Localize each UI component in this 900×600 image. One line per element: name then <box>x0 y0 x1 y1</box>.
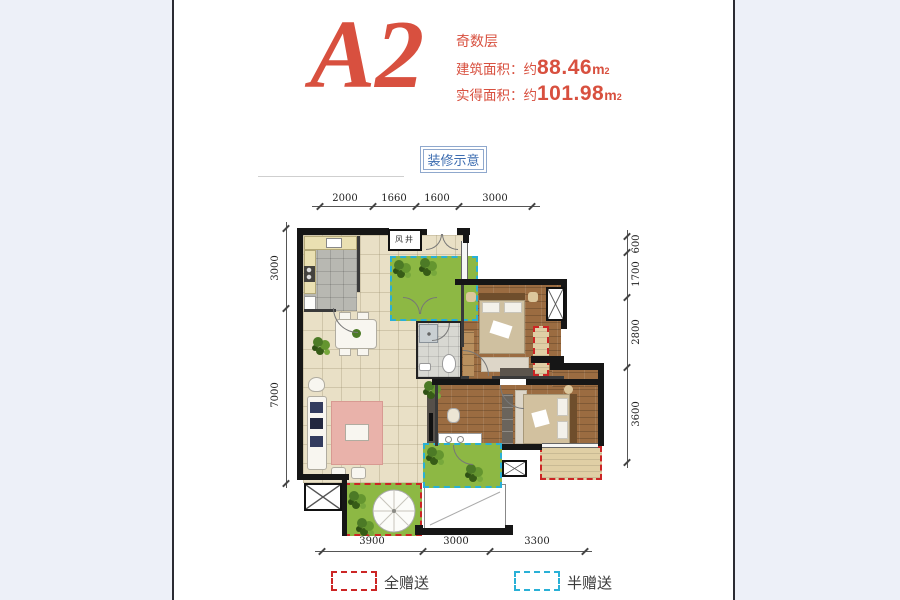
decor-tab-label: 装修示意 <box>423 149 484 170</box>
building-area-unit: m <box>592 61 604 77</box>
panel-left-edge <box>172 0 174 600</box>
vanity-basin <box>457 436 464 443</box>
parasol-icon <box>371 488 417 534</box>
wall <box>531 356 564 363</box>
interior-wall <box>304 309 336 312</box>
coffee-table <box>345 424 369 441</box>
tv <box>429 413 433 441</box>
dim-line-bottom <box>315 551 592 552</box>
building-area-label: 建筑面积：约 <box>456 58 537 78</box>
dim-label: 3300 <box>512 536 562 547</box>
divider-line <box>258 176 404 177</box>
plant <box>357 518 367 528</box>
building-area-value: 88.46 <box>537 56 592 80</box>
wall <box>598 363 604 446</box>
wind-shaft-box: 风井 <box>388 229 422 251</box>
plant <box>394 260 404 270</box>
dining-chair <box>339 348 351 356</box>
actual-area-sup: 2 <box>617 92 622 102</box>
kitchen-appliance <box>304 296 316 310</box>
nightstand <box>528 292 538 302</box>
elevator-box <box>304 483 342 511</box>
pillow <box>557 421 568 439</box>
plant <box>420 258 430 268</box>
dim-label: 2800 <box>631 312 643 352</box>
toilet <box>442 354 456 373</box>
nightstand <box>564 385 573 394</box>
dim-line-top <box>312 206 540 207</box>
kitchen-stove <box>304 266 315 282</box>
wall <box>455 279 567 285</box>
header-info: 奇数层 建筑面积：约88.46m2 实得面积：约101.98m2 <box>456 31 622 108</box>
decor-tab[interactable]: 装修示意 <box>420 146 487 173</box>
unit-name: A2 <box>296 0 438 114</box>
headboard <box>570 394 577 444</box>
wall <box>550 363 604 370</box>
actual-area-label: 实得面积：约 <box>456 84 537 104</box>
wall <box>526 379 598 385</box>
wall <box>297 228 303 480</box>
plant <box>313 337 323 347</box>
floor-note: 奇数层 <box>456 31 622 51</box>
x-mark-icon <box>548 289 563 319</box>
balcony-full-gift <box>540 446 602 480</box>
interior-wall <box>492 376 564 379</box>
wall <box>505 525 513 535</box>
dining-chair <box>357 348 369 356</box>
vanity-basin <box>445 436 452 443</box>
wall <box>297 228 389 235</box>
legend-half-gift-label: 半赠送 <box>567 572 612 593</box>
actual-area-line: 实得面积：约101.98m2 <box>456 82 622 108</box>
dim-label: 3000 <box>270 248 282 288</box>
plant <box>349 491 359 501</box>
dim-line-left <box>286 222 287 488</box>
x-mark-icon <box>504 462 525 475</box>
x-mark-icon <box>306 485 340 509</box>
bed-master <box>523 394 577 444</box>
pillow <box>504 302 522 313</box>
balcony-window <box>542 443 598 448</box>
actual-area-unit: m <box>604 87 616 103</box>
pedestal <box>447 408 460 423</box>
floorplan-page: A2 奇数层 建筑面积：约88.46m2 实得面积：约101.98m2 装修示意… <box>0 0 900 600</box>
parasol <box>371 488 417 534</box>
actual-area-value: 101.98 <box>537 82 604 106</box>
dim-label: 2000 <box>320 193 370 204</box>
dim-label: 3000 <box>470 193 520 204</box>
dim-label: 1700 <box>631 254 643 294</box>
bay-window-full-gift <box>533 326 549 376</box>
building-area-line: 建筑面积：约88.46m2 <box>456 56 622 82</box>
armchair <box>351 467 366 479</box>
wall <box>502 444 542 450</box>
shaft-box <box>546 287 565 321</box>
terrace <box>424 484 506 532</box>
shaft-box <box>502 460 527 477</box>
panel-right-edge <box>733 0 735 600</box>
headboard <box>479 293 525 300</box>
wall <box>342 478 347 536</box>
interior-wall <box>461 376 469 379</box>
dim-label: 7000 <box>270 375 282 415</box>
dim-label: 3600 <box>631 394 643 434</box>
legend-half-gift-swatch <box>514 571 560 591</box>
dim-label: 1600 <box>412 193 462 204</box>
legend-full-gift-swatch <box>331 571 377 591</box>
pillow <box>482 302 500 313</box>
plant <box>427 447 437 457</box>
legend-full-gift-label: 全赠送 <box>384 572 429 593</box>
pillow <box>557 398 568 416</box>
interior-wall <box>461 285 464 347</box>
wind-shaft-label: 风井 <box>395 235 415 244</box>
wall <box>420 528 510 535</box>
sofa-pillow <box>310 402 323 413</box>
wall <box>415 525 423 535</box>
wall <box>432 379 500 385</box>
interior-wall <box>357 236 360 292</box>
dim-line-right <box>627 230 628 468</box>
interior-wall <box>435 385 438 446</box>
armchair <box>308 377 325 392</box>
dim-label: 3900 <box>347 536 397 547</box>
bed-upper <box>479 293 525 354</box>
bathroom-sink <box>419 363 431 371</box>
sofa-pillow <box>310 418 323 429</box>
nightstand <box>466 292 476 302</box>
sofa-pillow <box>310 436 323 447</box>
plant <box>466 464 476 474</box>
entry-window <box>461 241 468 281</box>
building-area-sup: 2 <box>605 66 610 76</box>
terrace-slope-line <box>425 485 505 531</box>
kitchen-sink <box>326 238 342 248</box>
dim-label: 3000 <box>431 536 481 547</box>
wall <box>463 234 469 243</box>
